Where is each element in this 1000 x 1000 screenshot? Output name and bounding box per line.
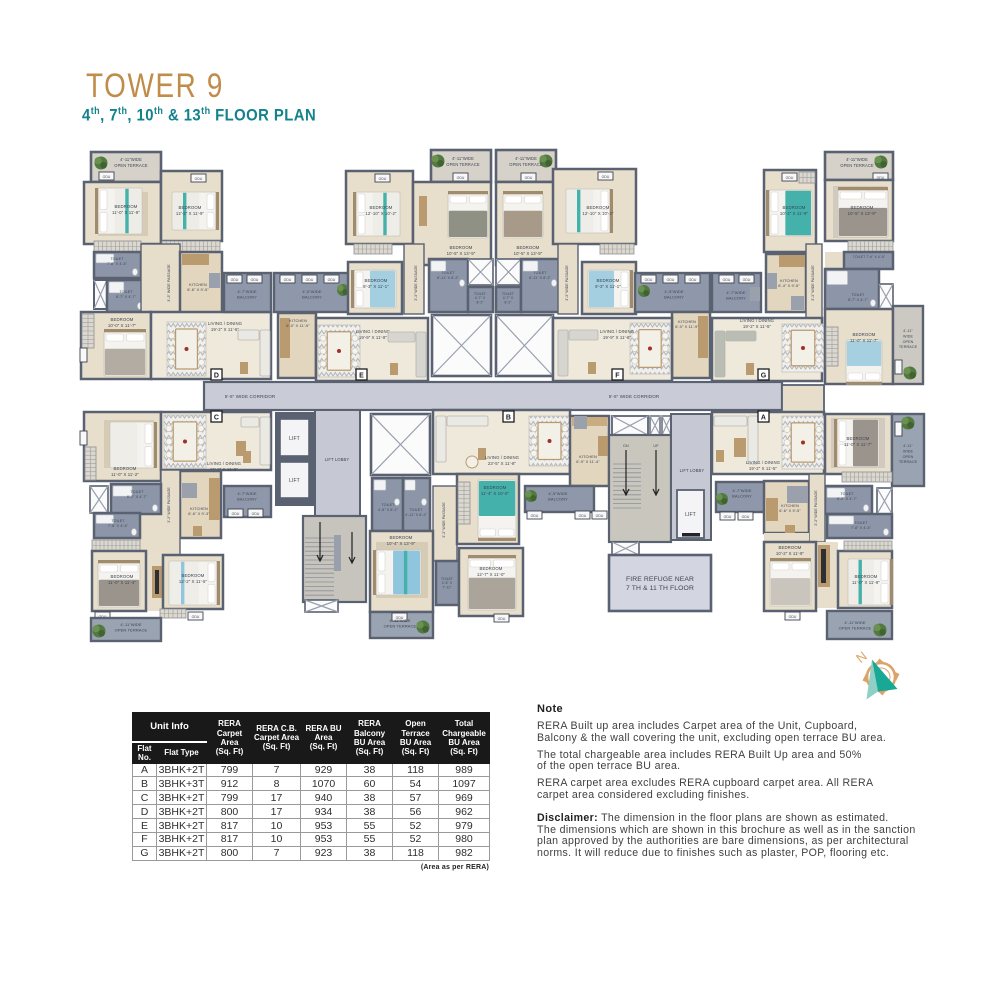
svg-text:TOILET: TOILET [111, 519, 125, 523]
svg-text:OPEN TERRACE: OPEN TERRACE [115, 627, 148, 632]
svg-text:6'-6" X 9'-3": 6'-6" X 9'-3" [188, 511, 210, 516]
svg-text:TOILET: TOILET [119, 290, 133, 294]
svg-text:3'-3" WIDE PASSAGE: 3'-3" WIDE PASSAGE [811, 265, 815, 301]
svg-text:6'-11" X 8'-2": 6'-11" X 8'-2" [437, 276, 459, 280]
svg-text:8'-7" X 4'-7": 8'-7" X 4'-7" [848, 298, 869, 302]
svg-text:DN: DN [623, 444, 629, 448]
svg-text:ODU: ODU [645, 278, 653, 282]
svg-text:3'-3" WIDE PASSAGE: 3'-3" WIDE PASSAGE [414, 265, 418, 301]
svg-text:LIFT: LIFT [685, 512, 696, 518]
svg-text:ODU: ODU [525, 176, 533, 180]
svg-text:TOILET: TOILET [381, 503, 395, 507]
svg-text:LIVING / DINING: LIVING / DINING [208, 321, 243, 326]
svg-text:4'-11"WIDE: 4'-11"WIDE [452, 156, 474, 161]
svg-text:11'-0" X 11'-4": 11'-0" X 11'-4" [108, 580, 136, 585]
svg-text:BEDROOM: BEDROOM [853, 332, 876, 337]
svg-text:BEDROOM: BEDROOM [847, 436, 870, 441]
svg-text:11'-0" X 11'-7": 11'-0" X 11'-7" [850, 338, 878, 343]
svg-text:4'-7"WIDE: 4'-7"WIDE [237, 491, 257, 496]
svg-text:TOILET: TOILET [110, 257, 124, 261]
svg-text:BEDROOM: BEDROOM [484, 485, 507, 490]
svg-text:BEDROOM: BEDROOM [115, 204, 138, 209]
svg-text:ODU: ODU [723, 278, 731, 282]
svg-text:TERRACE: TERRACE [899, 345, 918, 349]
svg-text:8'-2": 8'-2" [476, 300, 484, 304]
svg-text:BEDROOM: BEDROOM [390, 535, 413, 540]
svg-text:5'-5" WIDE CORRIDOR: 5'-5" WIDE CORRIDOR [225, 394, 276, 399]
svg-text:11'-0" X 11'-9": 11'-0" X 11'-9" [852, 580, 880, 585]
svg-text:8'-7" X 4'-7": 8'-7" X 4'-7" [116, 295, 137, 299]
svg-text:6'-4" X 9'-5": 6'-4" X 9'-5" [778, 283, 800, 288]
svg-text:BALCONY: BALCONY [237, 294, 257, 299]
svg-text:OPEN TERRACE: OPEN TERRACE [114, 163, 148, 168]
svg-text:ODU: ODU [531, 514, 539, 518]
svg-text:D: D [214, 373, 219, 380]
svg-text:4'-7"WIDE: 4'-7"WIDE [732, 488, 752, 493]
svg-text:4'-7"WIDE: 4'-7"WIDE [237, 289, 257, 294]
svg-text:ODU: ODU [667, 278, 675, 282]
svg-text:TOILET: TOILET [840, 492, 854, 496]
svg-text:LIVING / DINING: LIVING / DINING [746, 460, 781, 465]
svg-text:B: B [506, 415, 511, 422]
svg-text:7'-11": 7'-11" [443, 585, 452, 589]
svg-text:BEDROOM: BEDROOM [855, 574, 878, 579]
svg-text:4'-5"WIDE: 4'-5"WIDE [664, 289, 684, 294]
svg-text:TOILET 7'-6" X 4'-5": TOILET 7'-6" X 4'-5" [853, 255, 886, 259]
svg-text:6'-2" X 4'-7": 6'-2" X 4'-7" [127, 495, 148, 499]
svg-text:6'-6" X 9'-5": 6'-6" X 9'-5" [187, 287, 209, 292]
svg-text:BEDROOM: BEDROOM [517, 245, 540, 250]
svg-text:TOILET: TOILET [130, 490, 144, 494]
svg-text:BALCONY: BALCONY [302, 294, 322, 299]
svg-text:5'-5" WIDE CORRIDOR: 5'-5" WIDE CORRIDOR [609, 394, 660, 399]
svg-text:TOILET: TOILET [851, 293, 865, 297]
svg-text:19'-9" X 11'-8": 19'-9" X 11'-8" [603, 335, 632, 340]
svg-text:ODU: ODU [231, 278, 239, 282]
svg-text:3'-3" WIDE PASSAGE: 3'-3" WIDE PASSAGE [442, 502, 446, 538]
svg-text:BEDROOM: BEDROOM [480, 566, 503, 571]
svg-text:11'-0" X 11'-9": 11'-0" X 11'-9" [112, 210, 140, 215]
svg-text:LIFT: LIFT [289, 436, 300, 442]
svg-text:19'-9" X 11'-8": 19'-9" X 11'-8" [359, 335, 388, 340]
svg-text:6'-0" X 11'-9": 6'-0" X 11'-9" [286, 323, 310, 328]
svg-text:BEDROOM: BEDROOM [111, 317, 134, 322]
svg-text:WIDE: WIDE [903, 449, 913, 453]
svg-text:4'-11"WIDE: 4'-11"WIDE [515, 156, 537, 161]
svg-text:BEDROOM: BEDROOM [179, 205, 202, 210]
svg-text:4'-5"WIDE: 4'-5"WIDE [548, 491, 568, 496]
svg-text:6'-9" X 11'-4": 6'-9" X 11'-4" [576, 459, 600, 464]
svg-text:3'-3" WIDE PASSAGE: 3'-3" WIDE PASSAGE [167, 264, 171, 302]
svg-text:11'-4" X 10'-0": 11'-4" X 10'-0" [481, 491, 510, 496]
svg-text:ODU: ODU [103, 175, 111, 179]
svg-text:8'-2": 8'-2" [504, 300, 512, 304]
svg-text:ODU: ODU [498, 617, 506, 621]
svg-text:LIVING / DINING: LIVING / DINING [600, 329, 635, 334]
svg-text:E: E [359, 373, 364, 380]
svg-text:BALCONY: BALCONY [664, 294, 684, 299]
svg-text:4'-11"WIDE: 4'-11"WIDE [844, 620, 866, 625]
svg-text:OPEN TERRACE: OPEN TERRACE [509, 162, 543, 167]
svg-text:4'-11"WIDE: 4'-11"WIDE [846, 157, 868, 162]
svg-text:4'-11"WIDE: 4'-11"WIDE [389, 618, 411, 623]
svg-text:10'-5" X 13'-9": 10'-5" X 13'-9" [514, 251, 543, 256]
svg-text:OPEN TERRACE: OPEN TERRACE [384, 623, 417, 628]
svg-text:BEDROOM: BEDROOM [365, 278, 388, 283]
svg-text:ODU: ODU [251, 278, 259, 282]
svg-text:4'-11"WIDE: 4'-11"WIDE [120, 622, 142, 627]
svg-text:4'-8" X 8'-2": 4'-8" X 8'-2" [378, 508, 399, 512]
svg-text:12'-7" X 11'-0": 12'-7" X 11'-0" [477, 572, 506, 577]
svg-text:TOILET: TOILET [409, 508, 423, 512]
svg-text:12'-2" X 11'-9": 12'-2" X 11'-9" [176, 211, 205, 216]
svg-text:ODU: ODU [328, 278, 336, 282]
svg-text:ODU: ODU [743, 278, 751, 282]
svg-text:ODU: ODU [379, 177, 387, 181]
svg-text:ODU: ODU [602, 175, 610, 179]
svg-text:LIFT LOBBY: LIFT LOBBY [325, 457, 350, 462]
svg-text:12'-10" X 10'-2": 12'-10" X 10'-2" [365, 211, 397, 216]
svg-text:BEDROOM: BEDROOM [779, 545, 802, 550]
svg-text:ODU: ODU [689, 278, 697, 282]
svg-text:10'-0" X 11'-7": 10'-0" X 11'-7" [108, 323, 137, 328]
svg-text:19'-2" X 11'-5": 19'-2" X 11'-5" [743, 324, 772, 329]
svg-text:7'-8" X 4'-5": 7'-8" X 4'-5" [108, 524, 129, 528]
svg-text:12'-2" X 11'-5": 12'-2" X 11'-5" [179, 579, 208, 584]
svg-text:LIVING / DINING: LIVING / DINING [207, 461, 242, 466]
svg-text:BEDROOM: BEDROOM [370, 205, 393, 210]
svg-text:F: F [615, 373, 620, 380]
svg-text:11'-0" X 11'-7": 11'-0" X 11'-7" [844, 442, 872, 447]
svg-text:ODU: ODU [195, 177, 203, 181]
svg-text:BEDROOM: BEDROOM [111, 574, 134, 579]
svg-text:10'-2" X 11'-9": 10'-2" X 11'-9" [780, 211, 809, 216]
svg-text:LIFT: LIFT [289, 478, 300, 484]
svg-text:10'-5" X 13'-9": 10'-5" X 13'-9" [447, 251, 476, 256]
svg-text:BEDROOM: BEDROOM [182, 573, 205, 578]
svg-text:10'-4" X 13'-9": 10'-4" X 13'-9" [387, 541, 416, 546]
svg-text:BEDROOM: BEDROOM [587, 205, 610, 210]
svg-text:TOILET: TOILET [533, 271, 547, 275]
svg-text:11'-0" X 11'-2": 11'-0" X 11'-2" [111, 472, 139, 477]
svg-text:4'-11"WIDE: 4'-11"WIDE [120, 157, 142, 162]
svg-text:ODU: ODU [724, 515, 732, 519]
svg-text:A: A [761, 415, 766, 422]
svg-text:G: G [761, 373, 767, 380]
svg-text:OPEN TERRACE: OPEN TERRACE [839, 625, 872, 630]
svg-text:LIFT LOBBY: LIFT LOBBY [680, 468, 705, 473]
svg-text:ODU: ODU [579, 514, 587, 518]
svg-text:N: N [853, 648, 870, 666]
svg-text:FIRE REFUGE NEAR: FIRE REFUGE NEAR [626, 576, 694, 583]
svg-text:ODU: ODU [789, 615, 797, 619]
svg-text:6'-0" X 11'-9": 6'-0" X 11'-9" [675, 324, 699, 329]
svg-text:23'-5" X 11'-8": 23'-5" X 11'-8" [488, 461, 517, 466]
svg-text:4'-11": 4'-11" [903, 444, 913, 448]
svg-text:BEDROOM: BEDROOM [450, 245, 473, 250]
svg-text:BEDROOM: BEDROOM [783, 205, 806, 210]
svg-text:OPEN: OPEN [903, 455, 914, 459]
svg-text:ODU: ODU [306, 278, 314, 282]
svg-text:ODU: ODU [192, 615, 200, 619]
svg-text:3'-3" WIDE PASSAGE: 3'-3" WIDE PASSAGE [167, 487, 171, 523]
svg-text:WIDE: WIDE [903, 334, 913, 338]
svg-text:19'-2" X 11'-5": 19'-2" X 11'-5" [749, 466, 778, 471]
svg-text:12'-10" X 10'-2": 12'-10" X 10'-2" [582, 211, 614, 216]
svg-text:BALCONY: BALCONY [237, 496, 257, 501]
svg-text:7'-8" X 4'-5": 7'-8" X 4'-5" [107, 262, 128, 266]
svg-text:TOILET: TOILET [854, 521, 868, 525]
svg-text:7 TH & 11 TH FLOOR: 7 TH & 11 TH FLOOR [626, 585, 694, 592]
svg-text:BEDROOM: BEDROOM [851, 205, 874, 210]
svg-text:ODU: ODU [252, 512, 260, 516]
svg-text:ODU: ODU [284, 278, 292, 282]
svg-text:6'-11" X 8'-2": 6'-11" X 8'-2" [529, 276, 551, 280]
svg-text:4'-5"WIDE: 4'-5"WIDE [302, 289, 322, 294]
svg-text:9'-3" X 11'-1": 9'-3" X 11'-1" [595, 284, 621, 289]
svg-text:10'-2" X 11'-9": 10'-2" X 11'-9" [776, 551, 805, 556]
svg-text:BALCONY: BALCONY [548, 496, 568, 501]
svg-text:ODU: ODU [232, 512, 240, 516]
svg-text:4'-11": 4'-11" [903, 329, 913, 333]
svg-text:3'-3" WIDE PASSAGE: 3'-3" WIDE PASSAGE [814, 490, 818, 526]
svg-text:4'-11" X 8'-2": 4'-11" X 8'-2" [405, 513, 427, 517]
svg-text:UP: UP [653, 444, 659, 448]
svg-text:3'-3" WIDE PASSAGE: 3'-3" WIDE PASSAGE [565, 265, 569, 301]
svg-text:LIVING / DINING: LIVING / DINING [740, 318, 775, 323]
svg-text:BEDROOM: BEDROOM [114, 466, 137, 471]
svg-text:6'-2" X 4'-7": 6'-2" X 4'-7" [837, 497, 858, 501]
svg-text:ODU: ODU [596, 514, 604, 518]
svg-text:TERRACE: TERRACE [899, 460, 918, 464]
svg-text:OPEN TERRACE: OPEN TERRACE [446, 162, 480, 167]
svg-text:LIVING / DINING: LIVING / DINING [356, 329, 391, 334]
svg-text:LIVING / DINING: LIVING / DINING [485, 455, 520, 460]
svg-text:TOILET: TOILET [441, 271, 455, 275]
svg-text:BALCONY: BALCONY [726, 295, 746, 300]
svg-text:ODU: ODU [786, 176, 794, 180]
svg-text:ODU: ODU [457, 176, 465, 180]
svg-text:C: C [214, 415, 219, 422]
svg-text:9'-3" X 11'-1": 9'-3" X 11'-1" [363, 284, 389, 289]
svg-text:OPEN TERRACE: OPEN TERRACE [840, 163, 874, 168]
svg-text:6'-6" X 9'-5": 6'-6" X 9'-5" [779, 508, 801, 513]
svg-text:4'-7"WIDE: 4'-7"WIDE [726, 290, 746, 295]
svg-text:BEDROOM: BEDROOM [597, 278, 620, 283]
svg-text:7'-8" X 4'-5": 7'-8" X 4'-5" [851, 526, 872, 530]
svg-text:BALCONY: BALCONY [732, 493, 752, 498]
svg-text:10'-5" X 13'-9": 10'-5" X 13'-9" [848, 211, 877, 216]
svg-text:OPEN: OPEN [903, 340, 914, 344]
svg-text:19'-2" X 11'-5": 19'-2" X 11'-5" [211, 327, 240, 332]
svg-text:ODU: ODU [742, 515, 750, 519]
